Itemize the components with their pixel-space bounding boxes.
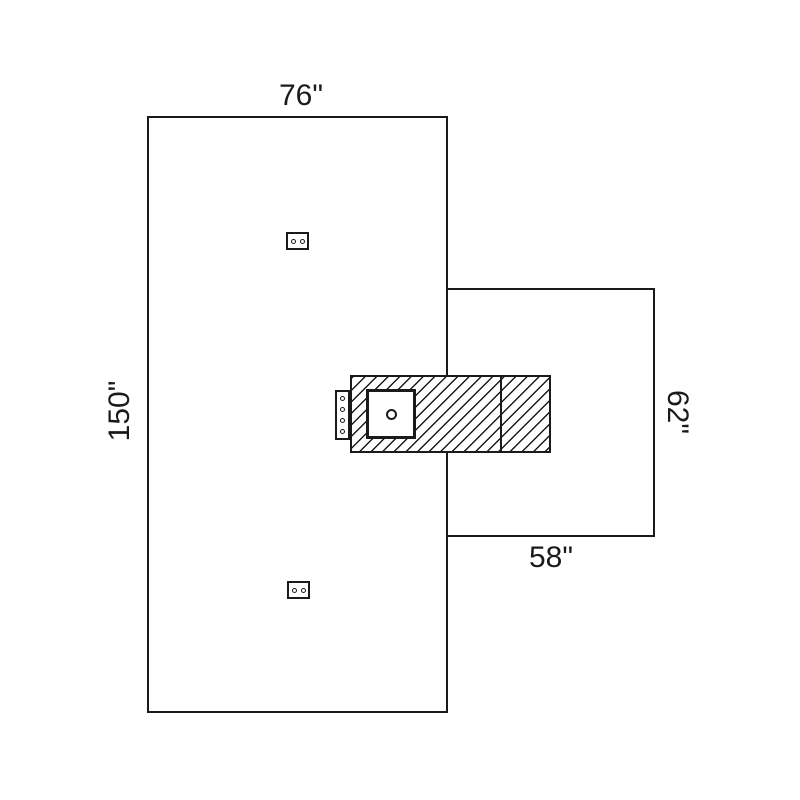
fenestration-aperture [366, 389, 416, 439]
tab-dot [340, 429, 345, 434]
tab-dot [301, 588, 306, 593]
diagram-canvas: 76" 150" 62" 58" [0, 0, 800, 800]
tab-dot [292, 588, 297, 593]
left-length-label: 150" [105, 381, 135, 442]
tab-dot [340, 396, 345, 401]
tab-dot [340, 418, 345, 423]
line-organizer-tab [335, 390, 350, 440]
aperture-hole-icon [386, 409, 397, 420]
right-height-label: 62" [662, 390, 692, 434]
tab-dot [340, 407, 345, 412]
top-width-label: 76" [279, 81, 323, 111]
tab-dot [291, 239, 296, 244]
hatch-divider-line [500, 375, 502, 453]
lower-securement-tab [287, 581, 310, 599]
bottom-width-label: 58" [529, 543, 573, 573]
tab-dot [300, 239, 305, 244]
upper-securement-tab [286, 232, 309, 250]
